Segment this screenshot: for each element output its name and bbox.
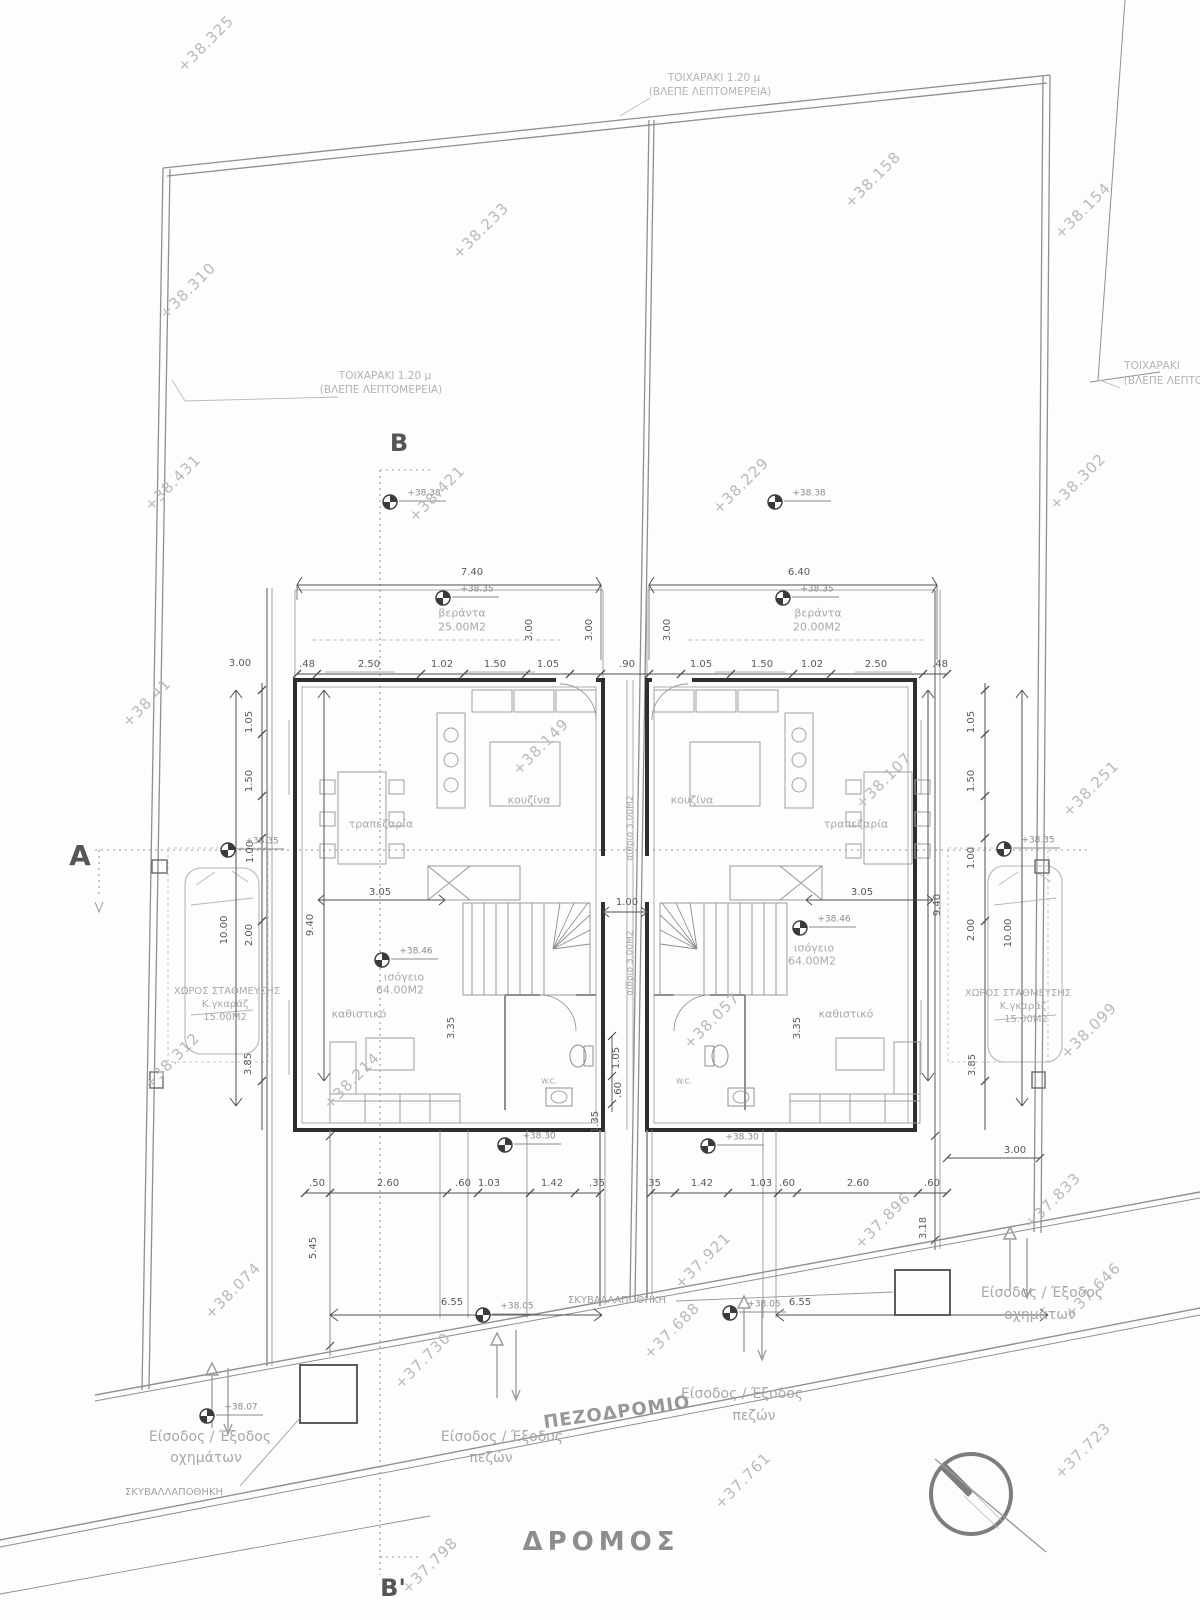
plan-linework bbox=[0, 0, 1200, 1620]
vehicle-entry-left-1: Είσοδος / Έξοδος bbox=[149, 1430, 271, 1444]
section-marker-b-prime: B' bbox=[380, 1576, 406, 1600]
dim: 1.03 bbox=[478, 1179, 500, 1189]
dim: .50 bbox=[309, 1179, 325, 1189]
dim: 2.60 bbox=[377, 1179, 399, 1189]
dimv: 1.05 bbox=[612, 1047, 622, 1069]
road-label: ΔΡΟΜΟΣ bbox=[522, 1529, 679, 1555]
dim: .35 bbox=[589, 1179, 605, 1189]
wall-note-top-1: ΤΟΙΧΑΡΑΚΙ 1.20 μ bbox=[668, 73, 760, 84]
dimv: 1.50 bbox=[245, 770, 255, 792]
atrium-upper: αίθριο 3.00Μ2 bbox=[627, 795, 636, 860]
stairs-left bbox=[428, 866, 590, 995]
dim: 1.42 bbox=[541, 1179, 563, 1189]
dimv: 3.18 bbox=[919, 1217, 929, 1239]
dimv: 10.00 bbox=[1004, 919, 1014, 948]
house-left-walls bbox=[295, 680, 603, 1130]
dimv: 3.85 bbox=[968, 1054, 978, 1076]
dim: 1.05 bbox=[537, 660, 559, 670]
survey-marker-elevation: +38.46 bbox=[399, 948, 432, 957]
survey-marker-elevation: +38.38 bbox=[407, 490, 440, 499]
wall-note-right-2: (ΒΛΕΠΕ ΛΕΠΤΟΜΕΡΕΙΑ) bbox=[1124, 376, 1200, 387]
room-groundfloor-left-1: ισόγειο bbox=[384, 972, 424, 983]
dim-300-left: 3.00 bbox=[229, 659, 251, 669]
dim-305-left: 3.05 bbox=[369, 888, 391, 898]
dim: 1.02 bbox=[801, 660, 823, 670]
room-living-left: καθιστικό bbox=[332, 1009, 387, 1020]
dimv: 9.40 bbox=[933, 894, 943, 916]
survey-marker-elevation: +38.07 bbox=[224, 1404, 257, 1413]
dimv: 1.05 bbox=[245, 711, 255, 733]
dimv: 2.00 bbox=[967, 919, 977, 941]
section-line-b bbox=[380, 470, 432, 1575]
survey-marker-elevation: +38.35 bbox=[460, 586, 493, 595]
parking-right-3: 15.00Μ2 bbox=[1004, 1015, 1048, 1025]
car-right bbox=[988, 866, 1062, 1062]
dimv: 3.00 bbox=[663, 619, 673, 641]
dim-100-center: 1.00 bbox=[616, 898, 638, 908]
section-marker-a: A bbox=[69, 842, 91, 870]
north-arrow-icon bbox=[931, 1454, 1046, 1552]
room-groundfloor-right-1: ισόγειο bbox=[794, 943, 834, 954]
wall-note-left-2: (ΒΛΕΠΕ ΛΕΠΤΟΜΕΡΕΙΑ) bbox=[320, 385, 442, 396]
veranda-left-1: βεράντα bbox=[438, 608, 485, 619]
dimv: 3.00 bbox=[585, 619, 595, 641]
pedestrian-entry-left-2: πεζών bbox=[469, 1451, 512, 1465]
dim: .48 bbox=[932, 660, 948, 670]
veranda-left-2: 25.00Μ2 bbox=[438, 622, 486, 633]
room-dining-left: τραπεζαρία bbox=[349, 819, 414, 830]
atrium-lower: αίθριο 3.00Μ2 bbox=[627, 930, 636, 995]
furniture-right bbox=[654, 690, 930, 1123]
wc-left bbox=[505, 995, 596, 1110]
survey-marker-elevation: +38.05 bbox=[747, 1301, 780, 1310]
dim-300-right-low: 3.00 bbox=[1004, 1146, 1026, 1156]
dim: 1.50 bbox=[751, 660, 773, 670]
car-left bbox=[185, 868, 259, 1054]
room-living-right: καθιστικό bbox=[819, 1009, 874, 1020]
wc-label-left: W.C. bbox=[541, 1079, 556, 1086]
dim-640: 6.40 bbox=[788, 568, 810, 578]
dim: .60 bbox=[455, 1179, 471, 1189]
dimv: 10.00 bbox=[220, 916, 230, 945]
garbage-store-right: ΣΚΥΒΑΛΛΑΠΟΘΗΚΗ bbox=[568, 1296, 666, 1306]
dimv: 2.00 bbox=[245, 924, 255, 946]
dimv: 1.00 bbox=[967, 847, 977, 869]
survey-marker-elevation: +38.05 bbox=[500, 1303, 533, 1312]
wc-right bbox=[654, 995, 754, 1110]
dimv: 9.40 bbox=[306, 914, 316, 936]
veranda-right-2: 20.00Μ2 bbox=[793, 622, 841, 633]
dim: .60 bbox=[779, 1179, 795, 1189]
dim-740: 7.40 bbox=[461, 568, 483, 578]
vehicle-entry-right-1: Είσοδος / Έξοδος bbox=[981, 1286, 1103, 1300]
pedestrian-entry-left-1: Είσοδος / Έξοδος bbox=[441, 1430, 563, 1444]
wall-note-right-1: ΤΟΙΧΑΡΑΚΙ bbox=[1124, 361, 1180, 372]
dim: 2.50 bbox=[358, 660, 380, 670]
survey-marker-elevation: +38.35 bbox=[1021, 837, 1054, 846]
dim: 1.03 bbox=[750, 1179, 772, 1189]
survey-marker-elevation: +38.30 bbox=[725, 1134, 758, 1143]
parking-right bbox=[948, 848, 1062, 1088]
dim: .48 bbox=[299, 660, 315, 670]
note-leaders bbox=[172, 98, 1120, 401]
site-plan-canvas: +38.325+38.233+38.158+38.154+38.310+38.4… bbox=[0, 0, 1200, 1620]
wall-note-left-1: ΤΟΙΧΑΡΑΚΙ 1.20 μ bbox=[339, 371, 431, 382]
dimv: 3.85 bbox=[244, 1053, 254, 1075]
pedestrian-entry-right-2: πεζών bbox=[732, 1409, 775, 1423]
vehicle-entry-left-2: οχημάτων bbox=[170, 1451, 242, 1465]
parking-left-1: ΧΩΡΟΣ ΣΤΑΘΜΕΥΣΗΣ bbox=[174, 987, 280, 997]
dim: 1.50 bbox=[484, 660, 506, 670]
dimv: 5.45 bbox=[309, 1237, 319, 1259]
dim: 2.60 bbox=[847, 1179, 869, 1189]
survey-marker-elevation: +38.35 bbox=[245, 838, 278, 847]
parking-right-1: ΧΩΡΟΣ ΣΤΑΘΜΕΥΣΗΣ bbox=[965, 989, 1071, 999]
dimv: 1.50 bbox=[967, 770, 977, 792]
dim: 2.50 bbox=[865, 660, 887, 670]
dim: .35 bbox=[645, 1179, 661, 1189]
section-marker-b: B bbox=[390, 431, 408, 455]
dimv: 3.00 bbox=[525, 619, 535, 641]
room-groundfloor-left-2: 64.00Μ2 bbox=[376, 985, 424, 996]
wall-openings bbox=[556, 675, 692, 902]
pedestrian-entry-right-1: Είσοδος / Έξοδος bbox=[681, 1387, 803, 1401]
house-right-walls bbox=[647, 680, 915, 1130]
dimv: 1.05 bbox=[967, 711, 977, 733]
garbage-store-left: ΣΚΥΒΑΛΛΑΠΟΘΗΚΗ bbox=[125, 1488, 223, 1498]
veranda-right-1: βεράντα bbox=[794, 608, 841, 619]
parking-left-3: 15.00Μ2 bbox=[203, 1013, 247, 1023]
entry-door-arcs bbox=[560, 684, 688, 720]
wall-note-top-2: (ΒΛΕΠΕ ΛΕΠΤΟΜΕΡΕΙΑ) bbox=[649, 87, 771, 98]
room-kitchen-left: κουζίνα bbox=[508, 795, 551, 806]
dimv: 1.35 bbox=[591, 1111, 601, 1133]
room-groundfloor-right-2: 64.00Μ2 bbox=[788, 956, 836, 967]
dim: .60 bbox=[924, 1179, 940, 1189]
parking-left-2: Κ.γκαράζ bbox=[202, 1000, 249, 1010]
dimv: 3.35 bbox=[447, 1017, 457, 1039]
vehicle-entry-right-2: οχημάτων bbox=[1004, 1308, 1076, 1322]
dimv: 3.35 bbox=[793, 1017, 803, 1039]
dim-305-right: 3.05 bbox=[851, 888, 873, 898]
survey-marker-elevation: +38.30 bbox=[522, 1133, 555, 1142]
dim-655-left: 6.55 bbox=[441, 1298, 463, 1308]
survey-marker-elevation: +38.35 bbox=[800, 586, 833, 595]
room-dining-right: τραπεζαρία bbox=[824, 819, 889, 830]
dim: 1.02 bbox=[431, 660, 453, 670]
dim: 1.42 bbox=[691, 1179, 713, 1189]
dim: .90 bbox=[619, 660, 635, 670]
dimv: .60 bbox=[614, 1082, 624, 1098]
survey-marker-elevation: +38.46 bbox=[817, 916, 850, 925]
parking-right-2: Κ.γκαράζ bbox=[1000, 1002, 1047, 1012]
room-kitchen-right: κουζίνα bbox=[671, 795, 714, 806]
wc-label-right: W.C. bbox=[676, 1079, 691, 1086]
dim-655-right: 6.55 bbox=[789, 1298, 811, 1308]
survey-marker-elevation: +38.38 bbox=[792, 490, 825, 499]
dim: 1.05 bbox=[690, 660, 712, 670]
